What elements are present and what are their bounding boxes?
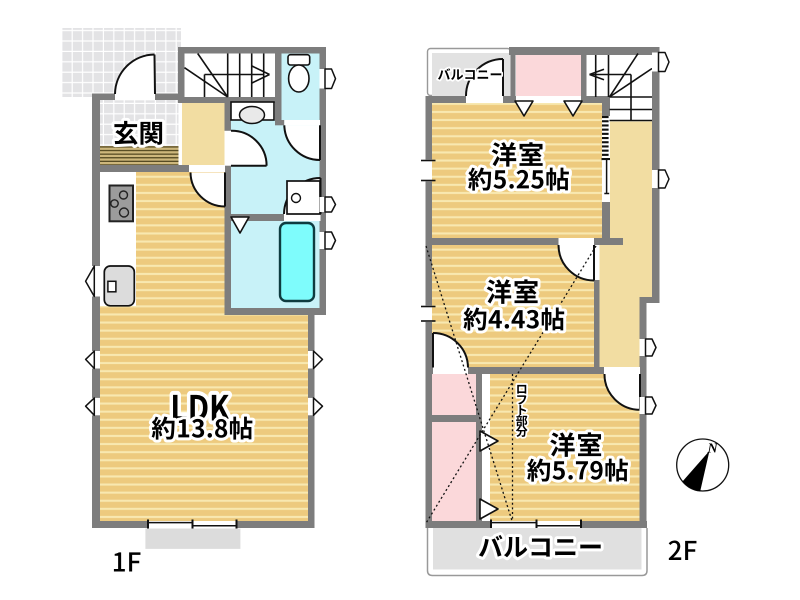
svg-text:N: N [706,442,718,457]
